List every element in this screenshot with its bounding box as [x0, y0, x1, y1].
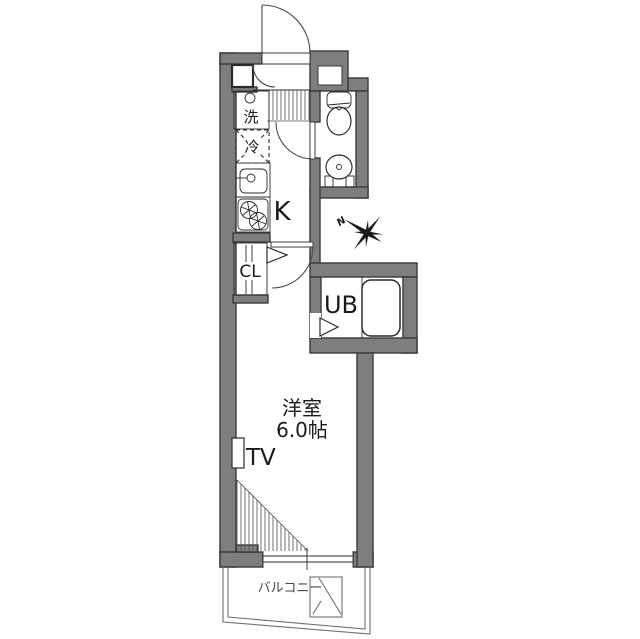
compass-spike-s — [365, 233, 369, 247]
entrance-threshold — [262, 53, 310, 64]
window-opening — [263, 552, 353, 567]
toilet-window — [318, 66, 342, 85]
fridge-area: 冷 — [236, 130, 269, 163]
kitchen-counter — [236, 163, 270, 232]
room-door-leaf — [271, 242, 313, 247]
shoe-cabinet — [232, 65, 253, 87]
kitchen-label: K — [273, 197, 291, 227]
wall-kitchen-cl-stub — [233, 233, 270, 242]
wall-left — [220, 53, 236, 567]
fridge-label: 冷 — [244, 138, 259, 156]
room-size-label: 6.0帖 — [276, 418, 328, 442]
basin-leg-right — [346, 176, 354, 187]
kitchen: K — [236, 163, 291, 232]
washer-label: 洗 — [243, 108, 258, 126]
wall-bottom-left — [220, 552, 263, 567]
sloped-ceiling-hatch — [237, 480, 308, 551]
wall-window-left-step — [236, 545, 258, 552]
entrance-door-arc — [262, 5, 310, 53]
bathtub — [362, 280, 400, 336]
wall-room-right — [357, 353, 373, 567]
floor-plan-page: 洗 冷 K — [0, 0, 640, 639]
wall-cl-bottom-stub — [233, 295, 268, 303]
evacuation-hatch-flap — [313, 601, 321, 614]
closet-label: CL — [239, 262, 261, 282]
balcony-outer-rail — [223, 567, 370, 634]
wall-top-left — [220, 53, 262, 64]
closet-door-arc — [253, 65, 275, 87]
sink-faucet-icon — [247, 174, 255, 182]
compass-spike-w — [354, 231, 367, 235]
stove-burner-2 — [250, 213, 267, 230]
balcony-inner-rail — [228, 567, 365, 629]
wall-ub-top — [310, 263, 417, 277]
room-name-label: 洋室 — [282, 396, 322, 420]
ub-door-direction-icon — [320, 318, 338, 336]
closet-door-direction-icon — [267, 247, 287, 263]
toilet-tank — [327, 92, 351, 108]
compass-spike-e — [367, 231, 383, 235]
washbasin — [326, 155, 352, 179]
wall-toilet-left — [310, 91, 320, 122]
wall-toilet-right — [356, 91, 368, 198]
compass: N — [335, 215, 383, 250]
wall-ub-bottom — [310, 338, 417, 353]
main-room: 洋室 6.0帖 TV — [232, 396, 328, 551]
balcony-window — [263, 548, 353, 570]
room-door — [271, 242, 313, 288]
toilet-lid-line — [328, 103, 350, 105]
washer-faucet-icon — [245, 93, 255, 103]
genkan-floor-hatch — [267, 90, 311, 121]
balcony-label: バルコニー — [258, 581, 323, 596]
toilet-door-arc — [276, 122, 313, 159]
toilet-door-leaf — [310, 122, 315, 159]
washer-area: 洗 — [234, 91, 269, 129]
compass-spike-n — [365, 220, 369, 233]
ub-door-gap — [310, 313, 321, 338]
balcony: バルコニー — [223, 567, 370, 634]
unit-bath: UB — [320, 277, 400, 338]
north-label: N — [335, 215, 349, 229]
floor-plan-canvas: 洗 冷 K — [0, 0, 640, 639]
tv-label: TV — [245, 445, 276, 471]
stove-burner-1 — [241, 202, 258, 219]
wall-toilet-step — [348, 78, 368, 91]
unit-bath-label: UB — [324, 291, 358, 319]
tv-outlet-box — [232, 438, 244, 468]
toilet-bowl — [327, 107, 351, 135]
